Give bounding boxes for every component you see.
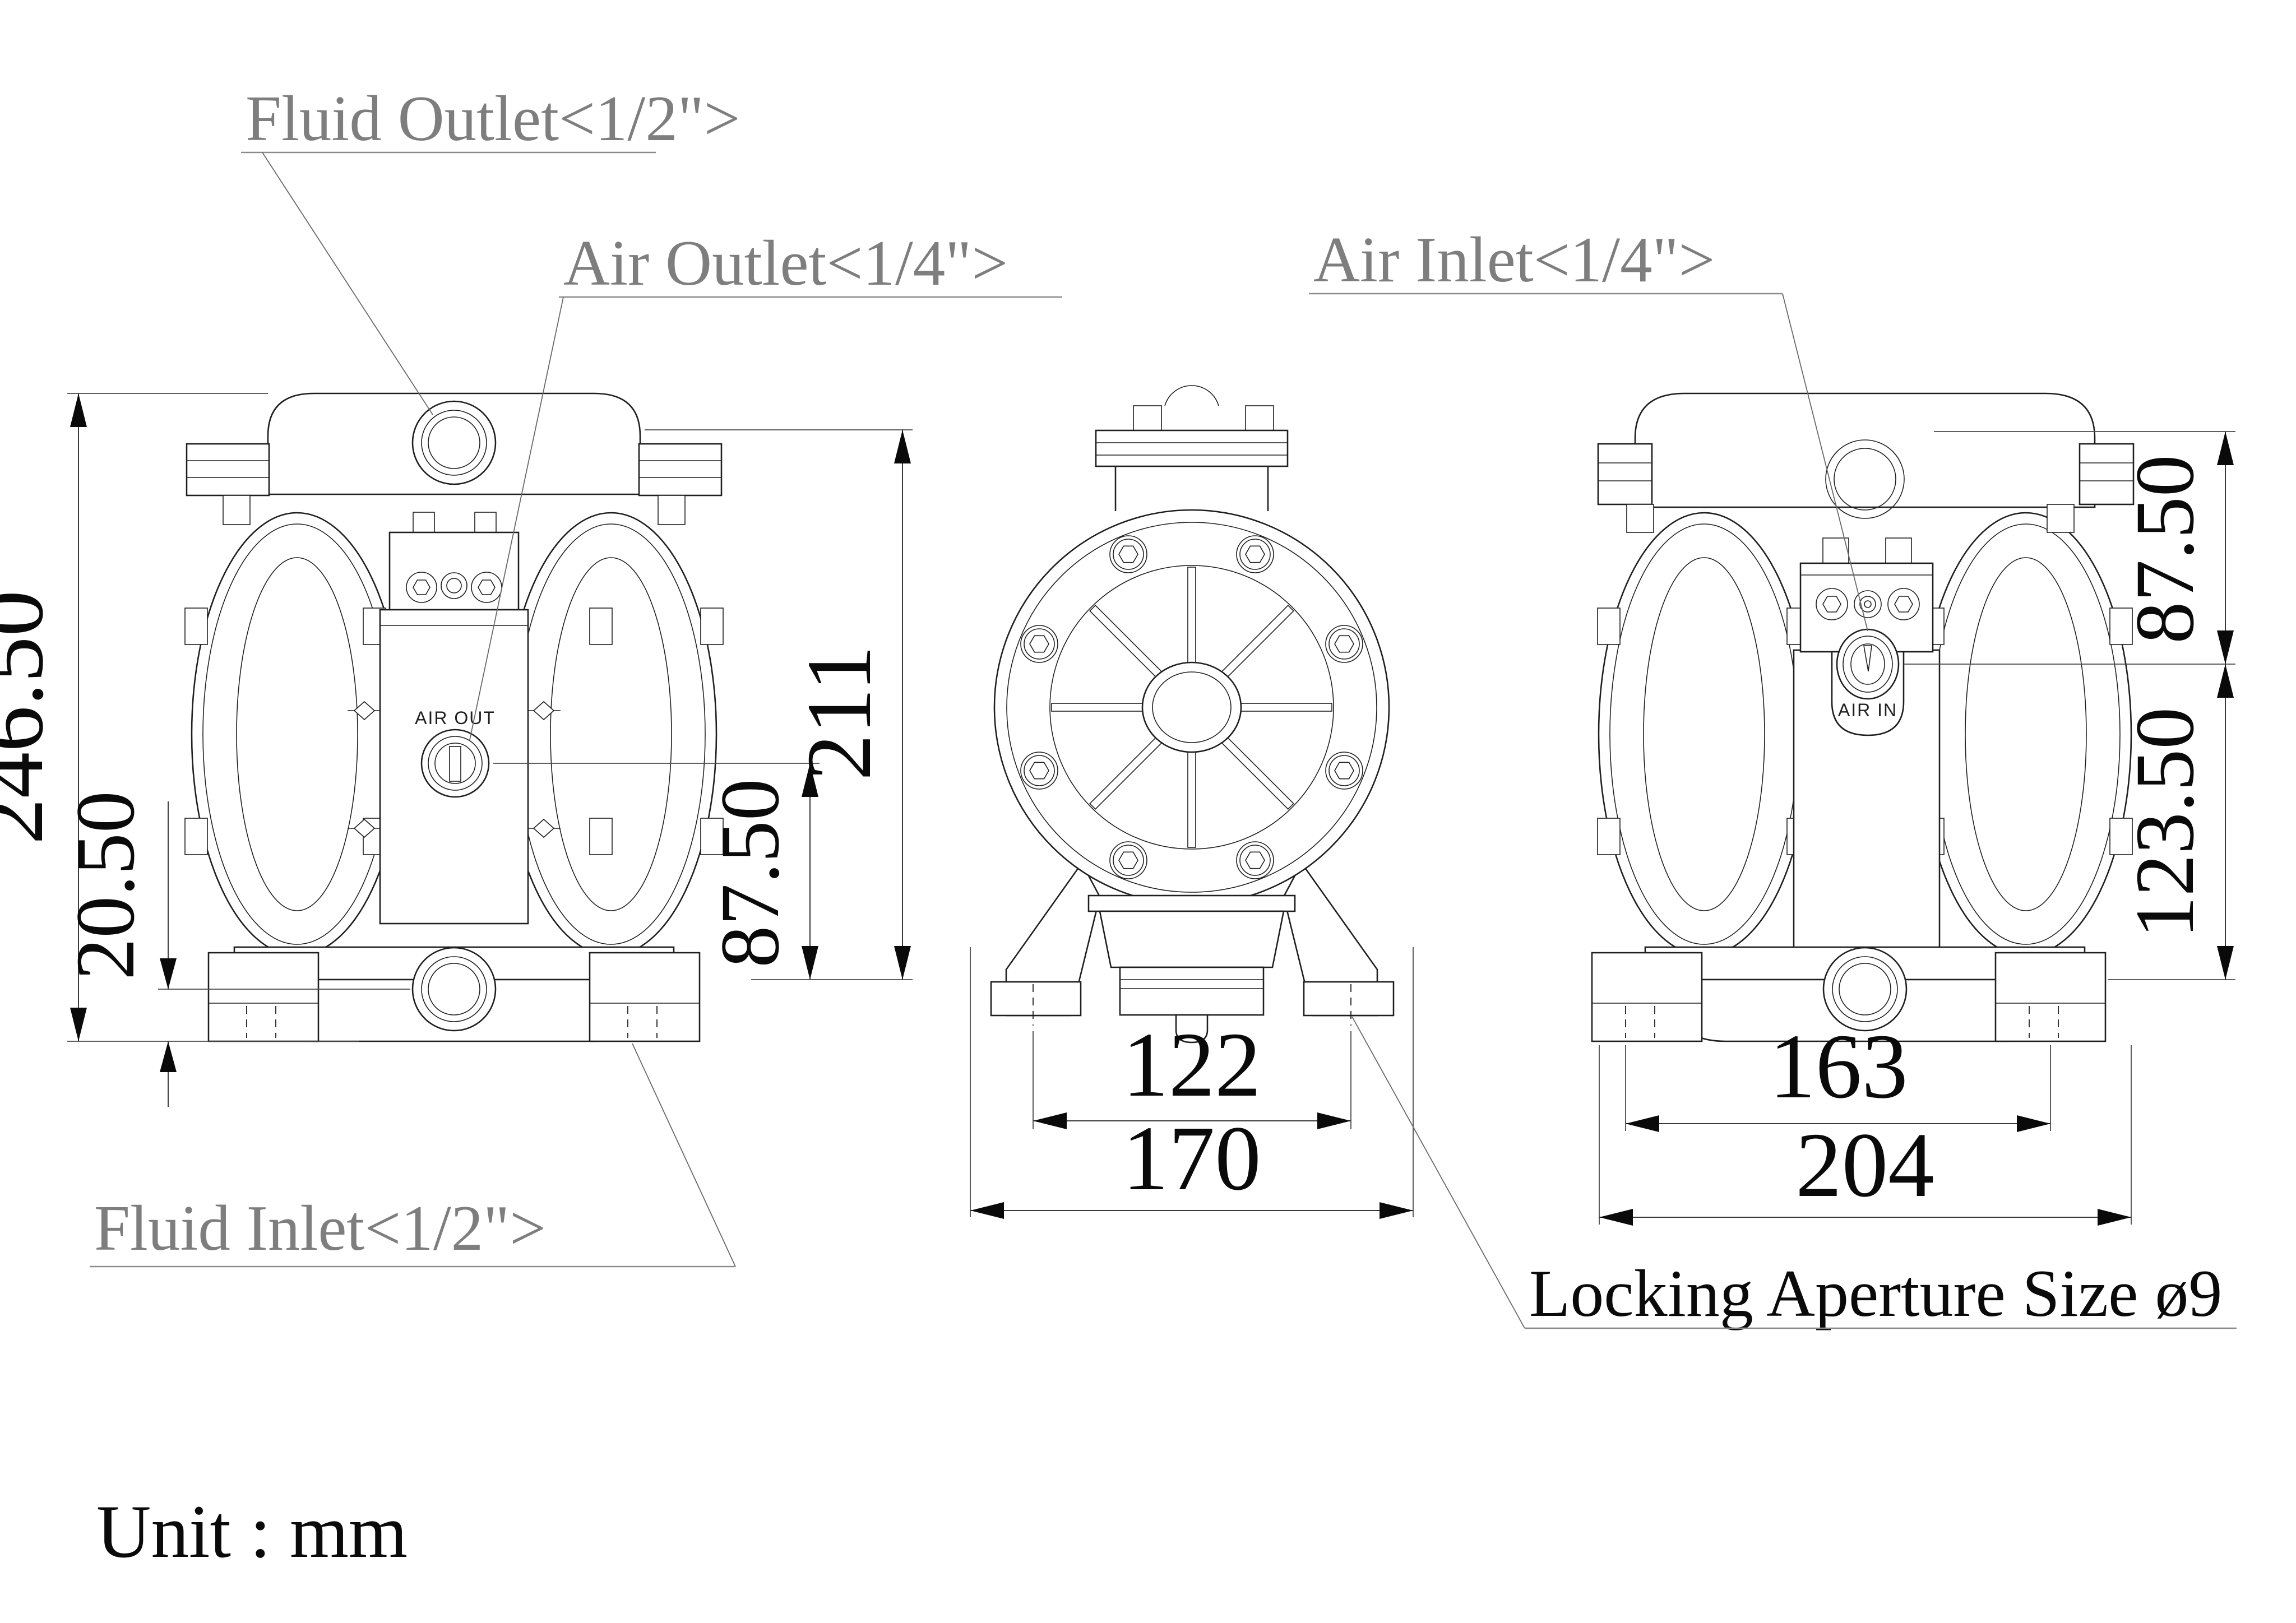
- dim-text-air-in-to-base: 123.50: [2118, 707, 2211, 939]
- side-view: [991, 386, 1394, 1042]
- front-centre-body: AIR OUT: [380, 610, 528, 924]
- dim-text-foot-slot-spacing: 122: [1122, 1013, 1261, 1116]
- front-valve-block: [390, 512, 519, 610]
- air-inlet-label: Air Inlet<1/4">: [1313, 224, 1715, 295]
- pump-dimensional-drawing: AIR OUT: [0, 0, 2296, 1623]
- clamp-tab: [590, 608, 612, 644]
- unit-note: Unit : mm: [96, 1490, 408, 1574]
- air-out-port: [422, 730, 489, 797]
- dim-text-foot-bolt-spacing: 163: [1769, 1015, 1908, 1117]
- dim-text-flange-to-base: 211: [788, 645, 890, 780]
- clamp-tab: [590, 818, 612, 855]
- dim-text-pump-depth: 170: [1122, 1107, 1261, 1209]
- fluid-inlet-label: Fluid Inlet<1/2">: [94, 1193, 546, 1264]
- side-right-foot: [1304, 982, 1394, 1026]
- dim-air-in-to-base: 123.50: [2108, 664, 2235, 980]
- air-in-port: [1837, 629, 1899, 699]
- dim-text-inlet-offset: 20.50: [59, 791, 152, 980]
- back-top-manifold: [1635, 393, 2095, 507]
- side-spokes: [1052, 567, 1332, 847]
- dim-text-total-height: 246.50: [0, 590, 62, 845]
- label-fluid-inlet: Fluid Inlet<1/2">: [90, 1044, 735, 1267]
- side-left-foot: [991, 982, 1081, 1026]
- air-in-housing: AIR IN: [1832, 629, 1904, 735]
- clamp-tab: [701, 608, 723, 644]
- dim-text-pump-width: 204: [1795, 1114, 1934, 1216]
- fluid-inlet-port: [413, 948, 496, 1031]
- fluid-outlet-label: Fluid Outlet<1/2">: [246, 83, 740, 154]
- clamp-tab: [185, 818, 207, 855]
- back-left-foot: [1592, 953, 1702, 1041]
- dim-text-air-out-to-base: 87.50: [703, 778, 797, 968]
- front-left-disc: [192, 513, 402, 956]
- back-left-disc: [1599, 513, 1809, 956]
- front-left-foot: [209, 953, 318, 1041]
- air-in-marking: AIR IN: [1838, 700, 1897, 720]
- clamp-tab: [1598, 818, 1620, 855]
- front-left-clamp: [187, 444, 269, 525]
- clamp-tab: [185, 608, 207, 644]
- front-right-disc: [506, 513, 716, 956]
- dim-text-top-to-air-in: 87.50: [2118, 455, 2211, 644]
- air-out-marking: AIR OUT: [415, 708, 496, 728]
- drawing-page: AIR OUT: [0, 0, 2296, 1623]
- side-hub: [1142, 662, 1241, 752]
- air-outlet-label: Air Outlet<1/4">: [563, 228, 1008, 299]
- back-right-foot: [1996, 953, 2105, 1041]
- front-right-clamp: [639, 444, 721, 525]
- front-right-foot: [590, 953, 700, 1041]
- fluid-outlet-port: [413, 401, 496, 484]
- back-left-clamp: [1598, 444, 1654, 532]
- front-view: AIR OUT: [185, 393, 723, 1041]
- locking-aperture-label: Locking Aperture Size ø9: [1529, 1256, 2222, 1330]
- side-top-neck: [1096, 386, 1288, 511]
- back-right-disc: [1920, 513, 2131, 956]
- clamp-tab: [1598, 608, 1620, 644]
- back-view: AIR IN: [1592, 393, 2133, 1041]
